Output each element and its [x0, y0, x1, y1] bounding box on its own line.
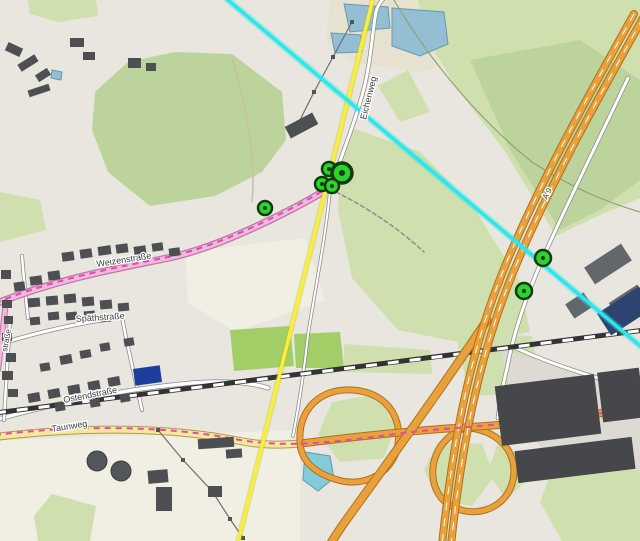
building [61, 251, 74, 262]
poi-marker-shape[interactable] [320, 182, 324, 186]
building [1, 270, 11, 279]
building [147, 469, 168, 484]
building [151, 242, 163, 251]
building [123, 337, 134, 347]
power-pylon-icon [228, 517, 232, 521]
building [119, 393, 130, 403]
building [30, 317, 41, 326]
poi-marker[interactable] [325, 179, 339, 193]
building [47, 270, 60, 281]
building [8, 389, 18, 397]
building [495, 374, 602, 446]
building [168, 247, 180, 256]
storage-tank-2 [111, 461, 131, 481]
building [128, 58, 141, 68]
building [2, 300, 12, 308]
building [13, 281, 25, 291]
storage-tank-1 [87, 451, 107, 471]
building [4, 316, 13, 324]
poi-marker-shape[interactable] [339, 170, 345, 176]
building [79, 248, 92, 259]
power-pylon-icon [331, 55, 335, 59]
building [70, 38, 84, 47]
building [46, 295, 59, 305]
building [146, 63, 156, 71]
building [208, 486, 222, 497]
building [2, 371, 13, 380]
building [6, 353, 16, 362]
poi-marker-shape[interactable] [263, 206, 267, 210]
building [156, 487, 172, 511]
building [39, 362, 50, 372]
poi-marker-shape[interactable] [327, 167, 331, 171]
building [99, 342, 110, 352]
power-pylon-icon [350, 20, 354, 24]
power-pylon-icon [181, 458, 185, 462]
building [28, 297, 41, 307]
building [226, 448, 243, 458]
building [29, 275, 42, 286]
poi-marker-shape[interactable] [541, 256, 545, 260]
building [48, 312, 60, 321]
poi-marker-shape[interactable] [522, 289, 526, 293]
pond-top-left [51, 70, 62, 80]
poi-marker[interactable] [535, 250, 551, 266]
building [597, 368, 640, 423]
pitch-2 [294, 332, 344, 368]
map-view[interactable]: WeizenstraßeSpäthstraßeOstendstraßeTaunw… [0, 0, 640, 541]
poi-marker[interactable] [516, 283, 532, 299]
power-pylon-icon [156, 428, 160, 432]
poi-marker-shape[interactable] [330, 184, 334, 188]
poi-marker[interactable] [258, 201, 272, 215]
building [115, 243, 128, 254]
building [97, 245, 111, 256]
building [100, 299, 113, 309]
building [83, 52, 95, 60]
building [82, 296, 95, 306]
map-canvas[interactable]: WeizenstraßeSpäthstraßeOstendstraßeTaunw… [0, 0, 640, 541]
building [64, 293, 77, 303]
power-pylon-icon [312, 90, 316, 94]
